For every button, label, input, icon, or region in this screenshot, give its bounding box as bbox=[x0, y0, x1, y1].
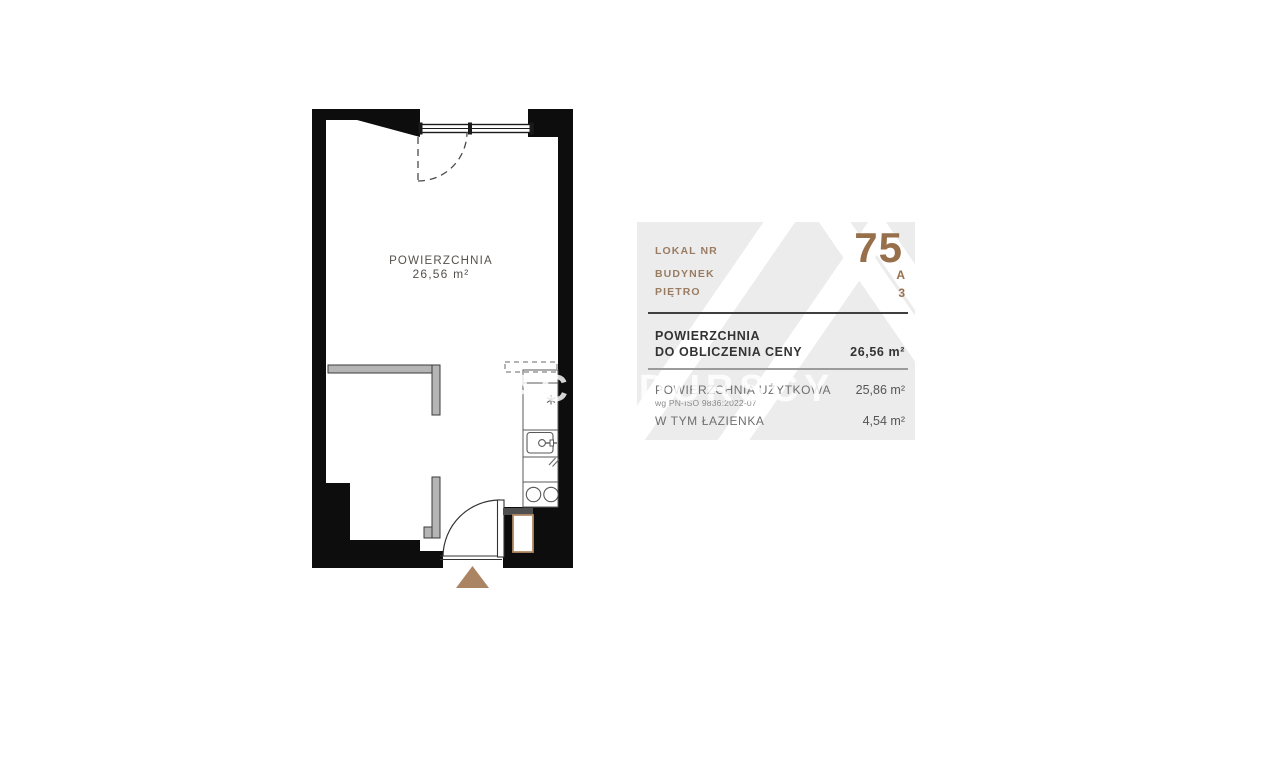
entry-door-swing bbox=[443, 500, 500, 556]
wall-top-left bbox=[312, 109, 420, 137]
floor-label: PIĘTRO bbox=[655, 286, 701, 298]
wall-bottom-step bbox=[420, 551, 443, 568]
wall-left bbox=[312, 109, 326, 568]
bathroom-area-value: 4,54 m² bbox=[863, 414, 905, 428]
building-label: BUDYNEK bbox=[655, 268, 715, 280]
wall-top-right-block bbox=[528, 109, 573, 137]
price-area-label-line2: DO OBLICZENIA CENY bbox=[655, 345, 802, 359]
wall-bathroom-pier bbox=[326, 483, 350, 540]
sink-icon bbox=[527, 433, 557, 454]
window-symbol bbox=[419, 123, 534, 135]
entrance-arrow-icon bbox=[456, 566, 489, 588]
wall-right bbox=[558, 135, 573, 568]
entry-cabinet bbox=[513, 515, 533, 552]
balcony-door-swing bbox=[418, 132, 467, 181]
divider-dark bbox=[648, 312, 908, 314]
plan-area-value: 26,56 m² bbox=[413, 267, 470, 281]
building-value: A bbox=[896, 268, 905, 282]
wall-bottom-left bbox=[312, 540, 420, 568]
plan-area-label: POWIERZCHNIA bbox=[389, 255, 493, 267]
entry-door bbox=[440, 500, 504, 560]
entry-lintel bbox=[503, 508, 533, 515]
hob-icon bbox=[526, 487, 558, 501]
price-area-value: 26,56 m² bbox=[850, 345, 905, 359]
page: POWIERZCHNIA 26,56 m² LOKAL NR 75 BUDYNE… bbox=[0, 0, 1280, 765]
usable-area-value: 25,86 m² bbox=[856, 383, 905, 397]
floor-value: 3 bbox=[898, 286, 905, 300]
price-area-label-line1: POWIERZCHNIA bbox=[655, 329, 760, 343]
unit-label: LOKAL NR bbox=[655, 245, 718, 257]
bathroom-area-label: W TYM ŁAZIENKA bbox=[655, 414, 765, 428]
agency-watermark: BRACIA DURSCY bbox=[440, 368, 835, 411]
